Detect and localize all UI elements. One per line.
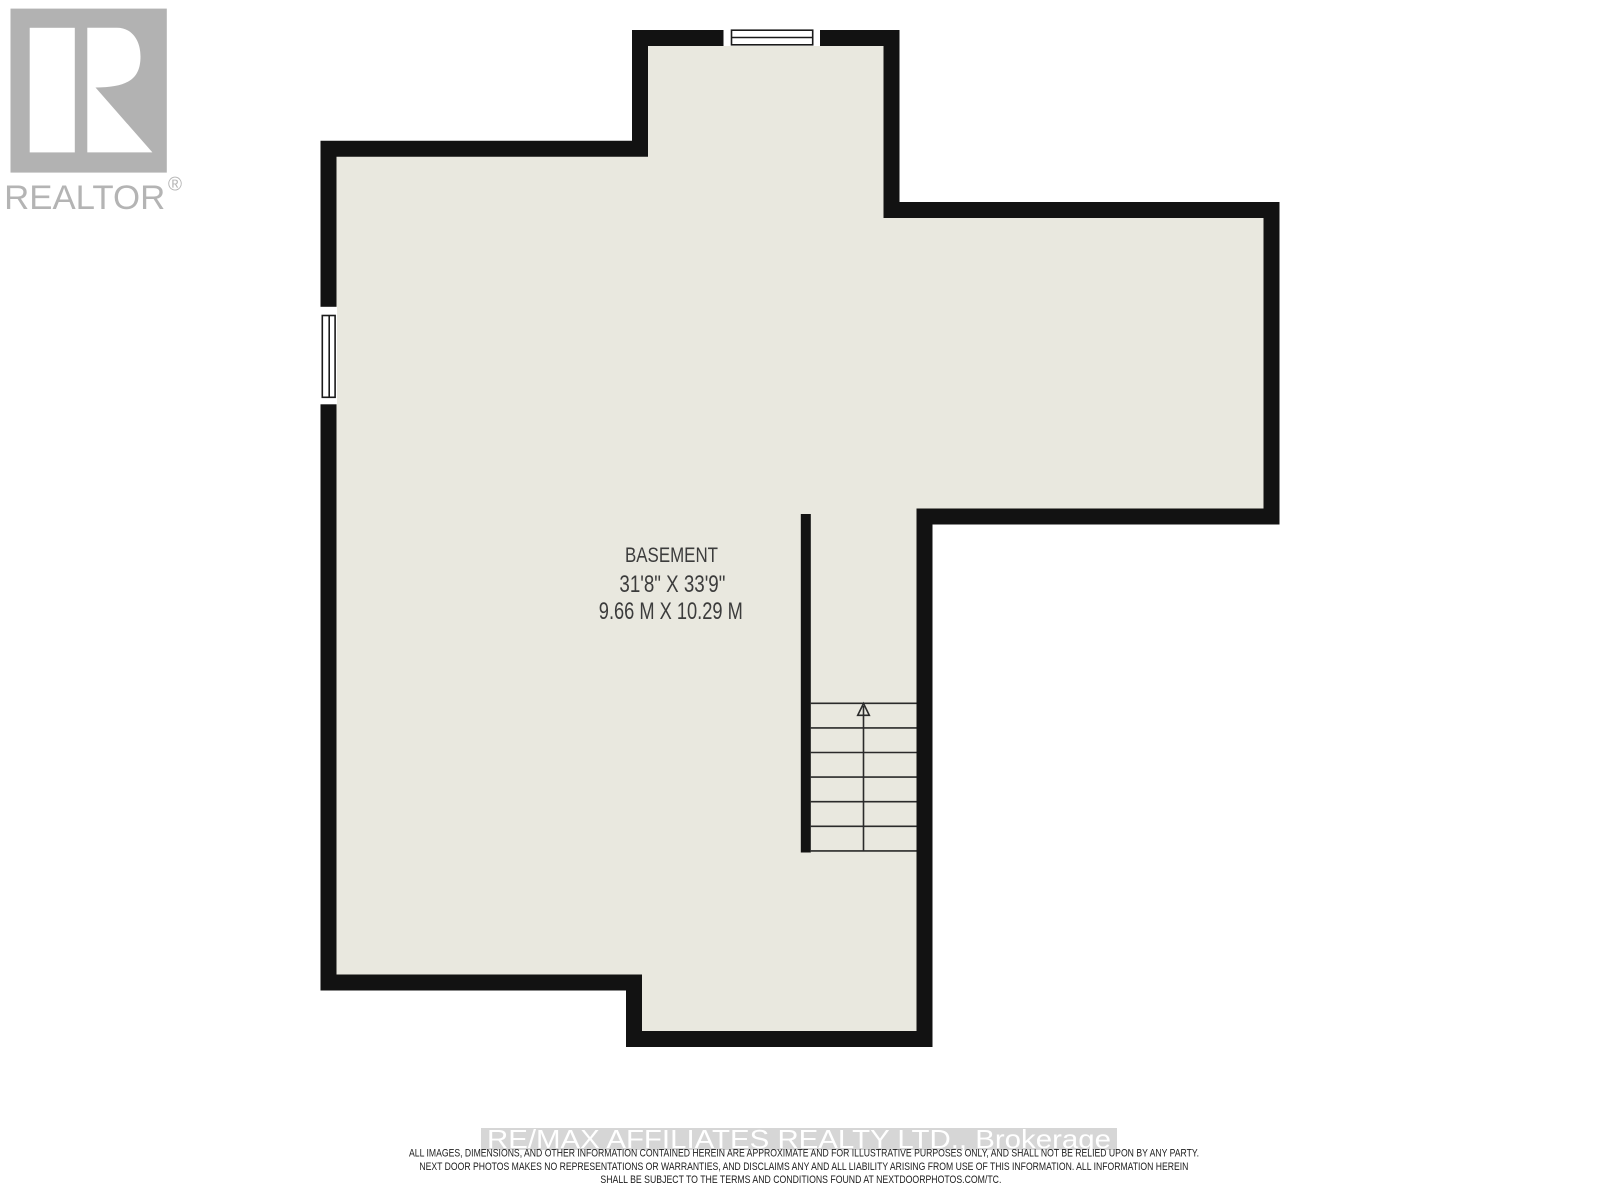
- svg-text:BASEMENT: BASEMENT: [625, 544, 718, 567]
- svg-text:SHALL BE SUBJECT TO THE TERMS: SHALL BE SUBJECT TO THE TERMS AND CONDIT…: [600, 1174, 1001, 1186]
- svg-text:®: ®: [168, 175, 182, 196]
- svg-text:9.66 M X 10.29 M: 9.66 M X 10.29 M: [599, 598, 743, 625]
- svg-text:ALL IMAGES, DIMENSIONS, AND OT: ALL IMAGES, DIMENSIONS, AND OTHER INFORM…: [409, 1148, 1199, 1160]
- svg-text:NEXT DOOR PHOTOS MAKES NO REPR: NEXT DOOR PHOTOS MAKES NO REPRESENTATION…: [419, 1161, 1188, 1173]
- svg-text:REALTOR: REALTOR: [4, 179, 165, 217]
- svg-text:31'8" X 33'9": 31'8" X 33'9": [619, 571, 725, 598]
